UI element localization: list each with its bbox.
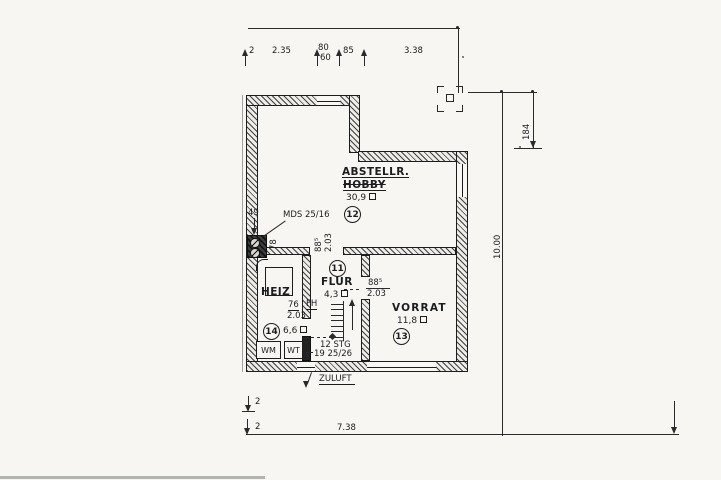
wall-top [246,95,360,106]
dim-top-edge: 2 [249,46,254,56]
niche-width-dim: 49 [248,208,259,218]
room-area-vorrat: 11,8 [397,316,427,326]
wash-tub-box: WT [284,341,303,359]
wall-step [349,95,360,153]
mds-pipe-circle [250,238,260,248]
dim-arrow-icon [671,427,677,434]
room-area-heiz: 6,6 [283,326,307,336]
door-heiz-width: 76 [288,300,299,311]
chimney-corner-icon [456,105,463,112]
room-name-hobby-struck: HOBBY [343,180,386,191]
door-flur-vorrat-height: 2.03 [367,289,386,299]
dim-top-right: 3.38 [404,46,423,56]
wall-flur-vorrat-stub [361,255,370,277]
window-bottom [367,361,436,372]
room-area-abstellraum: 30,9 [346,193,376,203]
dim-top-window-sill: 60 [320,53,331,63]
chimney-symbol [437,86,463,112]
wall-interior-right [343,247,456,255]
chimney-corner-icon [437,105,444,112]
room-number-abstellraum: 12 [344,206,361,223]
sqm-icon [420,316,427,323]
window-top [317,95,340,106]
wall-stair-enclosure [361,299,370,361]
stair-stringer [343,301,344,341]
vent-opening-zuluft [297,361,315,372]
stair-tread [331,309,343,310]
room-name-abstellraum: ABSTELLR. [342,167,409,178]
stair-tread [331,326,343,327]
door-abstell-flur-dim: 88⁵ 2.03 [314,233,334,252]
room-name-flur: FLUR [321,277,353,287]
wall-heiz-flur-lower [302,336,311,361]
walk-line-start-dot [329,333,336,340]
stairs-note-tick [307,352,313,357]
zuluft-label: ZULUFT [319,374,355,385]
dim-line-right-upper [533,92,534,148]
room-number-heiz: 14 [263,323,280,340]
wall-upper-right [358,151,468,162]
dim-bottom-tick2: 2 [255,422,260,432]
stair-tread [331,320,343,321]
dim-tick-arrow-icon [361,49,367,56]
dim-tick-arrow-icon [242,49,248,56]
sqm-icon [369,193,376,200]
stair-direction-arrow [352,303,353,330]
outer-contour-line [242,95,243,372]
dim-line-right-total [502,92,503,436]
mds-leader-line [263,221,286,237]
dim-line-top [248,28,460,29]
room-area-flur: 4,3 [324,290,348,300]
room-name-vorrat: VORRAT [392,303,447,313]
door-flur-vorrat-width: 88⁵ [368,278,382,288]
dim-arrow-icon [530,141,536,148]
scan-smudge [0,476,265,479]
dim-leader-184 [514,148,542,149]
stair-tread [331,304,343,305]
chimney-flue-square [446,94,454,102]
door-heiz-type: FH [306,299,317,310]
boiler-pipe [256,259,268,271]
dim-top-left: 2.35 [272,46,291,56]
dim-tick-base [242,411,255,412]
dim-right-total: 10.00 [493,235,503,259]
dim-tick-arrow-icon [336,49,342,56]
dim-right-upper: 184 [522,124,532,140]
niche-arrow-icon [251,228,257,235]
washing-machine-box: WM [256,341,281,359]
sqm-icon [300,326,307,333]
dim-extension-right [458,28,459,93]
dim-tick-arrow-icon [314,49,320,56]
stair-arrow-head-icon [349,299,355,306]
floor-plan-canvas: WM WT ABSTELLR. HOBBY 30,9 12 11 FLUR 4,… [0,0,721,480]
scan-speck [519,146,521,148]
window-right [456,164,468,197]
dim-line-bottom [246,434,679,435]
wash-tub-label: WT [287,346,300,355]
stairs-dims-label: 19 25/26 [314,349,352,359]
dim-top-mid: 85 [343,46,354,56]
stair-tread [331,315,343,316]
mds-label: MDS 25/16 [283,210,329,220]
dim-bottom-tick1: 2 [255,397,260,407]
niche-height-dim: 78 [269,239,279,250]
zuluft-arrow-head-icon [303,381,309,388]
dim-bottom-total: 7.38 [337,423,356,433]
chimney-corner-icon [437,86,444,93]
stair-walk-line [305,337,332,338]
room-number-vorrat: 13 [393,328,410,345]
mds-pipe-circle [250,248,260,258]
door-heiz-height: 2.03 [287,311,306,321]
room-name-heiz: HEIZ [261,287,290,297]
mds-duct-block [247,235,267,258]
stair-tread [331,331,343,332]
sqm-icon [341,290,348,297]
washing-machine-label: WM [261,346,276,355]
scan-speck [462,56,464,58]
room-number-flur: 11 [329,260,346,277]
